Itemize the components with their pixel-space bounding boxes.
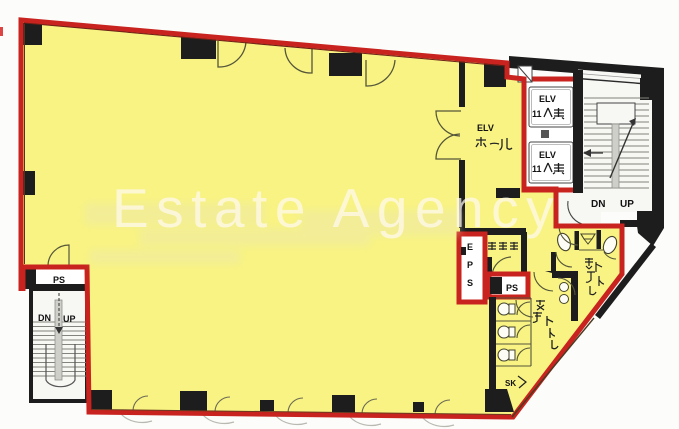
svg-text:E: E (467, 242, 473, 252)
svg-text:ELV: ELV (539, 94, 556, 104)
svg-text:UP: UP (620, 199, 634, 210)
svg-text:Estate Agency: Estate Agency (112, 177, 561, 239)
svg-text:PS: PS (506, 283, 518, 293)
svg-text:P: P (467, 260, 473, 270)
svg-text:DN: DN (38, 313, 51, 323)
svg-text:ELV: ELV (539, 150, 556, 160)
svg-text:11: 11 (532, 164, 542, 174)
svg-text:ELV: ELV (477, 123, 494, 133)
svg-text:S: S (467, 278, 473, 288)
svg-text:DN: DN (591, 199, 605, 210)
svg-text:UP: UP (63, 314, 76, 324)
svg-text:PS: PS (53, 275, 65, 285)
svg-text:11: 11 (532, 109, 542, 119)
svg-text:SK: SK (505, 379, 516, 388)
